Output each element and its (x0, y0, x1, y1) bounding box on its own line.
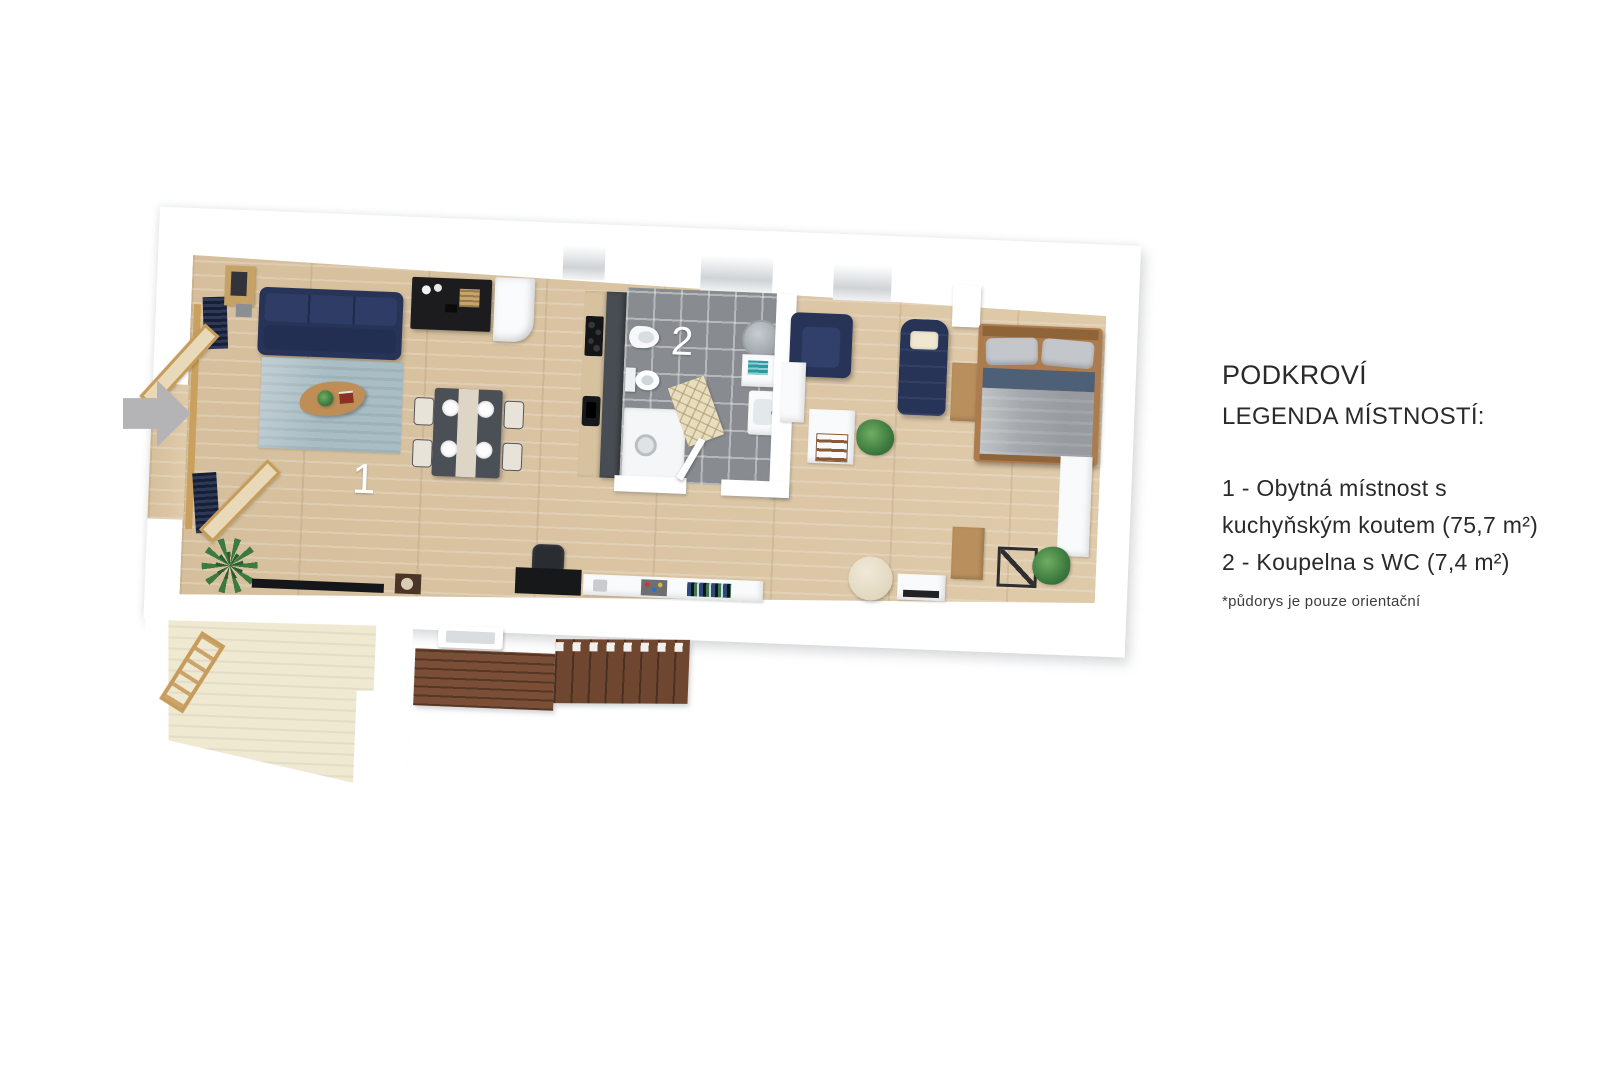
ladder-detail (815, 433, 848, 462)
table-plant (317, 390, 335, 408)
woven-basket (459, 289, 480, 308)
room-label-1: 1 (351, 455, 376, 504)
shower-drain (634, 434, 657, 457)
twig-planter (395, 573, 422, 594)
decor-box (445, 304, 457, 312)
wall-stub (952, 285, 982, 328)
table-runner (455, 389, 479, 478)
skylight-window (438, 625, 504, 650)
legend-title: PODKROVÍ (1222, 360, 1542, 390)
decor-base (236, 304, 253, 318)
chaise-lounge (897, 318, 949, 416)
bidet-bowl (638, 331, 654, 344)
double-bed (973, 324, 1102, 467)
sofa-seat (263, 325, 396, 354)
palm-plant (201, 537, 259, 595)
legend-room-list: 1 - Obytná místnost s kuchyňským koutem … (1222, 470, 1542, 581)
picture-frame (230, 272, 247, 297)
black-desk (515, 567, 582, 596)
twig-vase (401, 578, 413, 590)
sink-basin (586, 402, 597, 418)
legend: PODKROVÍ LEGENDA MÍSTNOSTÍ: 1 - Obytná m… (1222, 360, 1542, 611)
cushion (910, 331, 939, 350)
roof-deck (413, 648, 555, 711)
pillow (986, 338, 1038, 366)
toilet-tank (625, 367, 636, 391)
dining-table (431, 388, 502, 479)
legend-line-2: kuchyňským koutem (75,7 m²) (1222, 507, 1542, 544)
armchair-seat (801, 326, 841, 367)
slat-gaps (555, 642, 689, 652)
dining-chair (413, 397, 434, 426)
ladder-shelf-table (807, 409, 855, 465)
plate (475, 441, 493, 459)
sofa (257, 287, 404, 361)
floor-plan: 1 2 (93, 205, 1179, 927)
vase (422, 285, 431, 294)
laptop (903, 590, 939, 598)
bathroom-south-wall (614, 475, 687, 494)
towel-stack (748, 360, 769, 375)
legend-line-1: 1 - Obytná místnost s (1222, 470, 1542, 507)
duvet (980, 388, 1095, 458)
dormer-window-recess (833, 258, 893, 302)
side-table (897, 574, 946, 602)
pillow (1041, 338, 1095, 370)
bathroom-south-wall (721, 479, 790, 498)
console-table (780, 362, 806, 423)
legend-note: *půdorys je pouze orientační (1222, 593, 1542, 611)
skylight-glass (446, 630, 495, 644)
vase (434, 284, 442, 292)
fridge-cabinet (493, 277, 536, 343)
vases (593, 579, 607, 592)
dining-chair (502, 443, 523, 472)
table-books (339, 393, 354, 404)
dormer-window-recess (700, 248, 774, 293)
dormer-window-recess (562, 239, 606, 281)
sideboard (410, 277, 492, 332)
desk (951, 527, 985, 580)
plate (442, 399, 460, 417)
wardrobe (1057, 456, 1093, 557)
sofa-back-cushions (264, 293, 397, 326)
dining-chair (503, 401, 524, 430)
room-label-2: 2 (670, 319, 694, 365)
roof-slats (553, 639, 690, 704)
toilet (625, 367, 660, 392)
legend-line-3: 2 - Koupelna s WC (7,4 m²) (1222, 544, 1542, 581)
terrace-walls (135, 589, 414, 835)
dining-chair (412, 439, 433, 468)
plate (440, 440, 458, 458)
easel-shelf (224, 265, 256, 306)
terrace-floor (135, 589, 414, 835)
legend-subtitle: LEGENDA MÍSTNOSTÍ: (1222, 404, 1542, 430)
cooktop (584, 316, 604, 357)
shower-area (621, 407, 686, 481)
art-board (641, 579, 668, 596)
kitchen-sink (582, 396, 601, 427)
book-row (687, 582, 732, 598)
plate (477, 401, 495, 419)
